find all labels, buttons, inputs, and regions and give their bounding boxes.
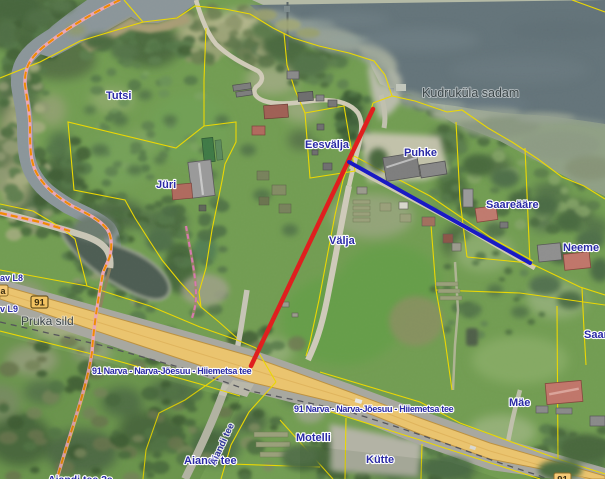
svg-text:Pruka sild: Pruka sild — [21, 314, 74, 328]
svg-text:Välja: Välja — [329, 235, 356, 247]
svg-text:Kudruküla sadam: Kudruküla sadam — [422, 86, 519, 100]
svg-text:91: 91 — [34, 298, 45, 309]
svg-text:v L9: v L9 — [0, 304, 18, 314]
svg-text:91 Narva - Narva-Jõesuu - Hiie: 91 Narva - Narva-Jõesuu - Hiiemetsa tee — [92, 366, 252, 376]
svg-text:Mäe: Mäe — [509, 397, 530, 409]
svg-text:Aiandi tee 2a: Aiandi tee 2a — [48, 474, 113, 479]
svg-text:Eesvälja: Eesvälja — [305, 139, 350, 151]
svg-text:Saare: Saare — [584, 329, 605, 341]
svg-text:Neeme: Neeme — [563, 242, 599, 254]
svg-text:av L8: av L8 — [0, 273, 23, 283]
svg-text:Saareääre: Saareääre — [486, 199, 539, 211]
svg-text:91 Narva - Narva-Jõesuu - Hiie: 91 Narva - Narva-Jõesuu - Hiiemetsa tee — [294, 404, 454, 414]
svg-text:91: 91 — [557, 475, 568, 479]
svg-text:Jüri: Jüri — [156, 179, 176, 191]
svg-text:Kütte: Kütte — [366, 454, 394, 466]
svg-text:Motelli: Motelli — [296, 432, 331, 444]
svg-text:Puhke: Puhke — [404, 147, 437, 159]
svg-text:Tutsi: Tutsi — [106, 90, 131, 102]
